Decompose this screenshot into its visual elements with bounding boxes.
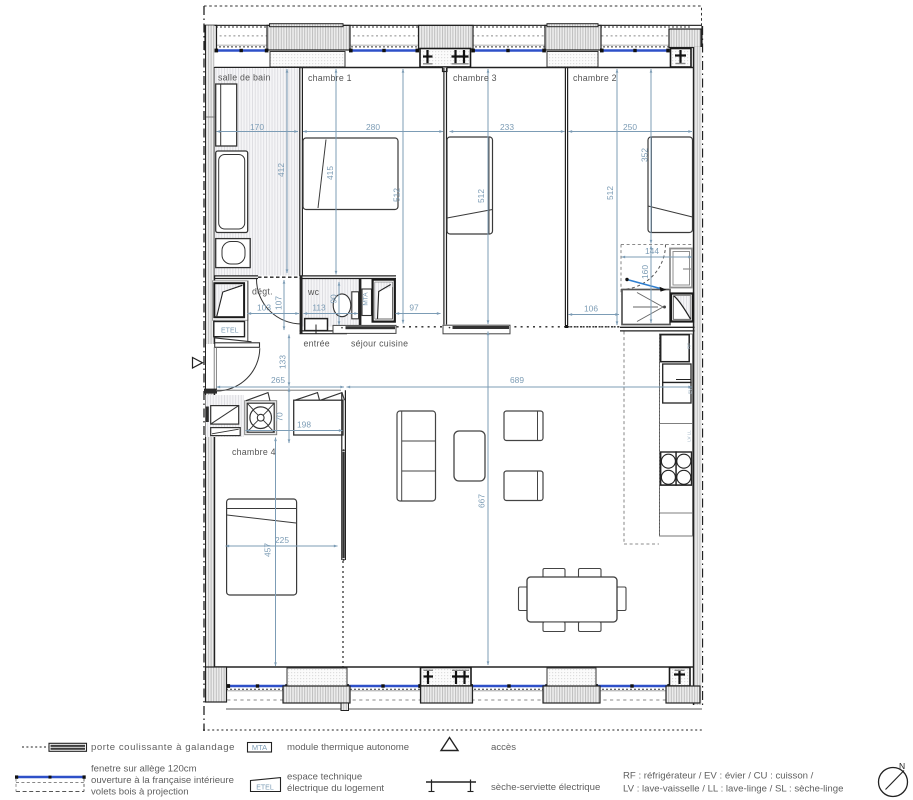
svg-text:70: 70 <box>275 412 285 422</box>
svg-text:porte coulissante à galandage: porte coulissante à galandage <box>91 742 235 753</box>
svg-text:fenetre sur allège 120cm: fenetre sur allège 120cm <box>91 764 197 775</box>
svg-text:233: 233 <box>500 122 514 132</box>
svg-text:107: 107 <box>274 296 284 310</box>
svg-text:salle de bain: salle de bain <box>218 73 271 83</box>
svg-text:106: 106 <box>584 304 598 314</box>
svg-text:512: 512 <box>605 186 615 200</box>
svg-text:RF : réfrigérateur / EV : évie: RF : réfrigérateur / EV : évier / CU : c… <box>623 771 814 782</box>
svg-text:RF: RF <box>687 343 692 349</box>
svg-text:chambre 3: chambre 3 <box>453 73 497 83</box>
svg-text:MTA: MTA <box>252 743 267 752</box>
svg-text:N: N <box>899 761 905 771</box>
svg-text:dégt.: dégt. <box>252 287 273 297</box>
svg-text:sèche-serviette électrique: sèche-serviette électrique <box>491 782 600 793</box>
svg-text:wc: wc <box>307 287 320 297</box>
svg-text:415: 415 <box>325 166 335 180</box>
svg-text:512: 512 <box>476 189 486 203</box>
svg-text:électrique du logement: électrique du logement <box>287 783 384 794</box>
svg-text:133: 133 <box>278 355 288 369</box>
svg-text:EV: EV <box>688 388 693 394</box>
svg-text:198: 198 <box>297 420 311 430</box>
svg-text:412: 412 <box>276 163 286 177</box>
svg-text:103: 103 <box>257 303 271 313</box>
svg-text:chambre 2: chambre 2 <box>573 73 617 83</box>
svg-text:MTA: MTA <box>363 292 370 306</box>
svg-text:265: 265 <box>271 375 285 385</box>
svg-text:113: 113 <box>312 303 326 313</box>
svg-text:séjour cuisine: séjour cuisine <box>351 339 408 349</box>
svg-text:689: 689 <box>510 375 524 385</box>
svg-text:LV : lave-vaisselle / LL : lav: LV : lave-vaisselle / LL : lave-linge / … <box>623 784 843 795</box>
svg-text:250: 250 <box>623 122 637 132</box>
svg-text:352: 352 <box>640 148 650 162</box>
svg-text:144: 144 <box>645 246 659 256</box>
svg-text:chambre 1: chambre 1 <box>308 73 352 83</box>
svg-text:512: 512 <box>392 188 402 202</box>
svg-text:entrée: entrée <box>304 339 330 349</box>
svg-text:module thermique autonome: module thermique autonome <box>287 742 409 753</box>
svg-text:ETEL: ETEL <box>221 328 239 335</box>
svg-text:280: 280 <box>366 122 380 132</box>
svg-text:170: 170 <box>250 122 264 132</box>
svg-text:LV LL: LV LL <box>687 430 692 442</box>
svg-text:ETEL: ETEL <box>256 785 274 792</box>
svg-text:volets bois à projection: volets bois à projection <box>91 787 189 798</box>
svg-text:160: 160 <box>640 265 650 279</box>
svg-text:accès: accès <box>491 742 516 753</box>
svg-text:espace technique: espace technique <box>287 772 362 783</box>
svg-text:90: 90 <box>329 294 339 304</box>
svg-text:225: 225 <box>275 535 289 545</box>
svg-text:667: 667 <box>477 494 487 508</box>
svg-text:ouverture à la française intér: ouverture à la française intérieure <box>91 775 234 786</box>
svg-text:457: 457 <box>263 543 273 557</box>
svg-text:chambre 4: chambre 4 <box>232 447 276 457</box>
svg-text:97: 97 <box>409 303 419 313</box>
